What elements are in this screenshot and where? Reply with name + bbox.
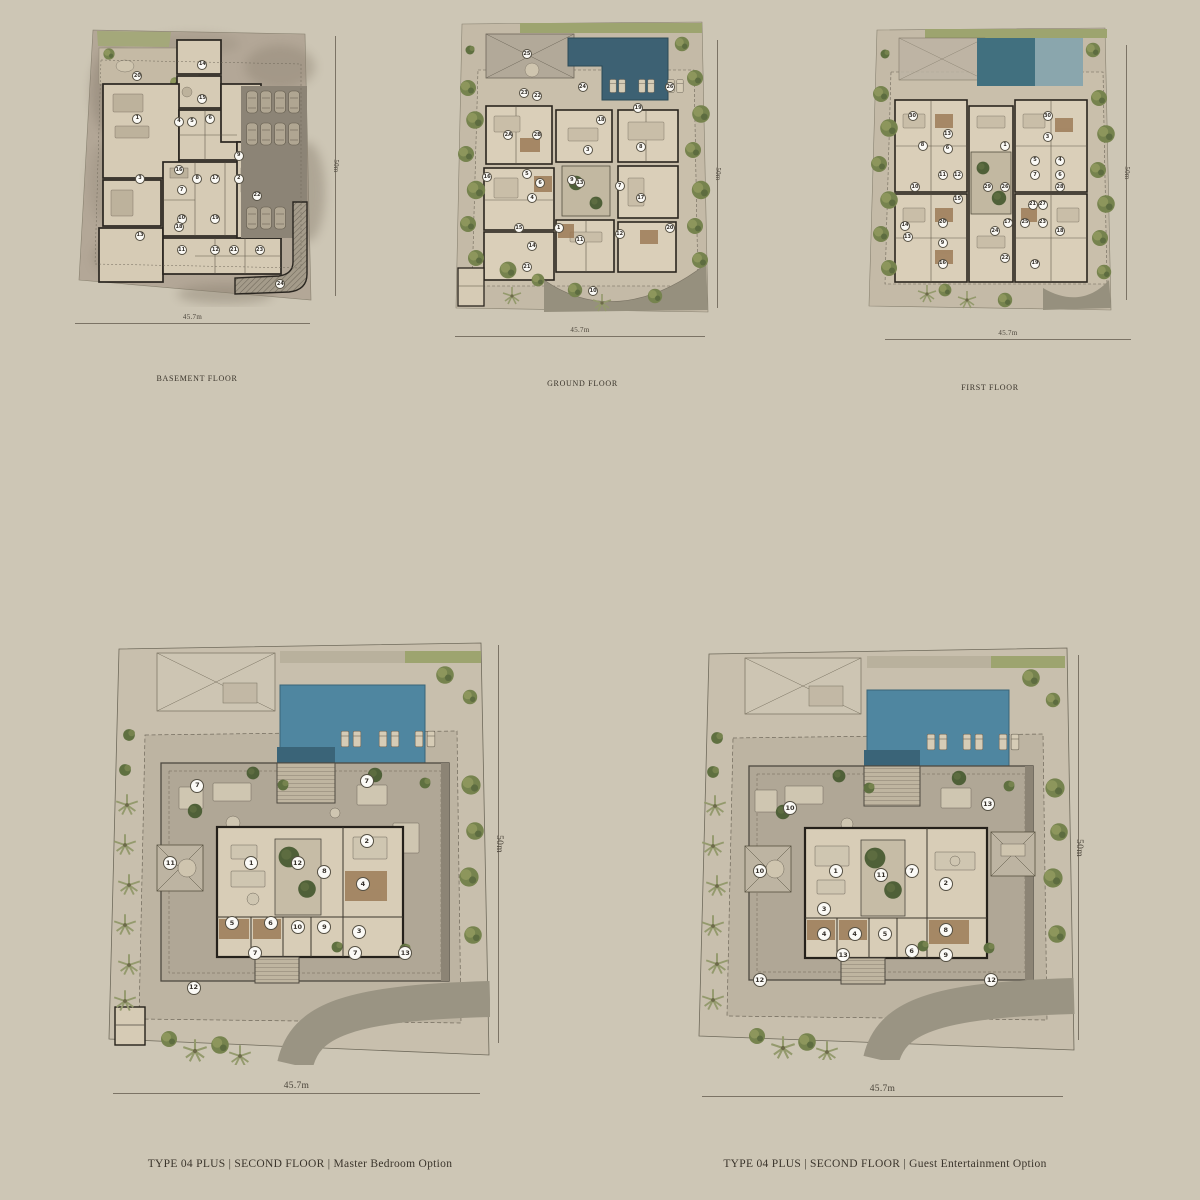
caption-master: TYPE 04 PLUS | SECOND FLOOR | Master Bed… xyxy=(105,1158,495,1170)
grass-strip xyxy=(405,651,481,663)
gatehouse xyxy=(115,1007,145,1045)
pool-shallow xyxy=(1035,38,1083,86)
dim-label: 50m xyxy=(1123,166,1131,179)
grass-strip xyxy=(520,23,702,33)
brochure-page: { "page": { "background_color": "#cdc6b5… xyxy=(0,0,1200,1200)
dim-basement-width: 45.7m xyxy=(75,313,310,324)
dim-label: 45.7m xyxy=(455,326,705,334)
dim-master-height: 50m xyxy=(498,645,499,1043)
dim-label: 50m xyxy=(332,159,340,172)
caption-guest: TYPE 04 PLUS | SECOND FLOOR | Guest Ente… xyxy=(695,1158,1075,1170)
entry-stair xyxy=(841,958,885,984)
entry-stair xyxy=(255,957,299,983)
dim-label: 50m xyxy=(494,835,504,853)
courtyard xyxy=(562,166,610,216)
dim-label: 45.7m xyxy=(113,1081,480,1091)
dim-label: 45.7m xyxy=(75,313,310,321)
floorplan-first: 3030813613547628101112152926212714132092… xyxy=(865,22,1115,317)
dim-first-height: 50m xyxy=(1126,45,1127,300)
caption-basement: BASEMENT FLOOR xyxy=(77,374,317,383)
entrance-canopy xyxy=(486,34,574,78)
pergola-right xyxy=(991,832,1035,876)
dim-ground-height: 50m xyxy=(717,40,718,308)
dim-label: 45.7m xyxy=(702,1084,1063,1094)
dim-guest-height: 50m xyxy=(1078,655,1079,1040)
grass-strip xyxy=(97,31,171,47)
roof-canopy xyxy=(157,653,275,711)
floorplan-guest-option: 101310111723445689131212 xyxy=(695,640,1075,1060)
courtyard xyxy=(971,152,1011,214)
dim-label: 45.7m xyxy=(885,329,1131,337)
pool xyxy=(977,38,1035,86)
gatehouse xyxy=(458,268,484,306)
dim-first-width: 45.7m xyxy=(885,329,1131,340)
dim-basement-height: 50m xyxy=(335,36,336,296)
grass-strip xyxy=(991,656,1065,668)
roof-canopy xyxy=(745,658,861,714)
dim-label: 50m xyxy=(1074,839,1084,857)
dim-ground-width: 45.7m xyxy=(455,326,705,337)
caption-first: FIRST FLOOR xyxy=(865,383,1115,392)
dim-master-width: 45.7m xyxy=(113,1081,480,1094)
floorplan-basement: 142015145693168717222101913181112212324 xyxy=(75,22,335,307)
floorplan-master-option: 7721111284561093771312 xyxy=(105,635,490,1065)
pergola-left xyxy=(745,846,791,892)
grass-strip xyxy=(925,29,1107,38)
dim-label: 50m xyxy=(714,167,722,180)
pergola xyxy=(157,845,203,891)
caption-ground: GROUND FLOOR xyxy=(450,379,715,388)
canopy xyxy=(899,38,985,80)
floorplan-ground: 252426232219182A2B3816569137174151411112… xyxy=(450,18,715,318)
dim-guest-width: 45.7m xyxy=(702,1084,1063,1097)
